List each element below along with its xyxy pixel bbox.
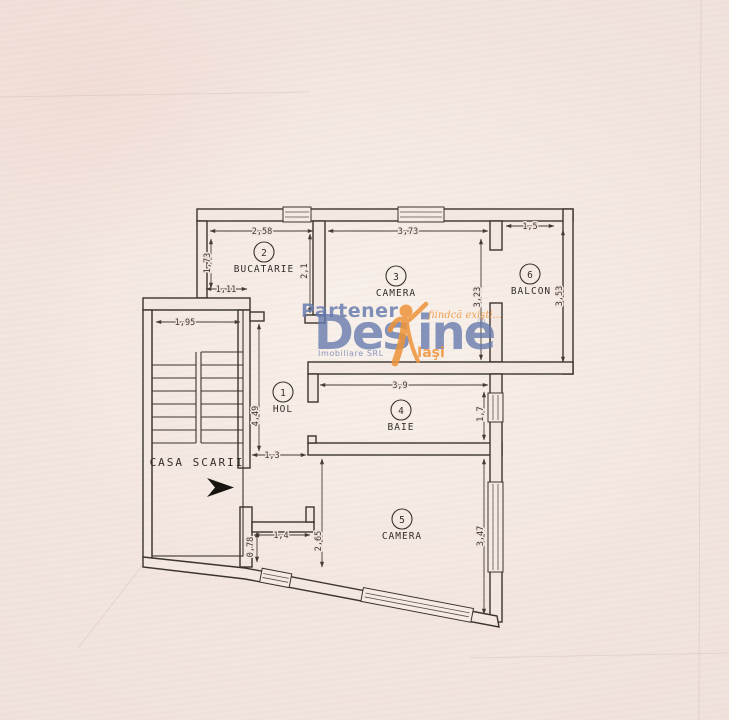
stair-steps <box>152 352 243 443</box>
window-top-room3 <box>398 207 444 222</box>
room-name-camera3: CAMERA <box>376 288 416 299</box>
room-label-hol: 1 HOL <box>273 382 293 415</box>
dim-kitchen-left: 1,73 <box>203 253 213 273</box>
divider-door-jamb <box>305 315 325 323</box>
window-top-kitchen <box>283 207 311 222</box>
dim-room3-right: 3,23 <box>473 287 483 307</box>
room-number-3: 3 <box>393 272 399 283</box>
room-number-5: 5 <box>399 515 405 526</box>
windows <box>260 207 503 622</box>
stairwell-right-wall <box>238 310 250 468</box>
window-right-room5 <box>488 482 503 572</box>
bath-left-jamb <box>308 374 318 402</box>
stair-enclosure <box>152 310 243 556</box>
room-number-1: 1 <box>280 388 286 399</box>
room-name-hol: HOL <box>273 404 293 415</box>
floor-plan-svg: 2,58 1,73 1,11 2,1 3,73 3,23 1,5 3,53 1,… <box>0 0 729 720</box>
dim-kitchen-right: 2,1 <box>300 263 310 278</box>
scanned-floor-plan-paper: 2,58 1,73 1,11 2,1 3,73 3,23 1,5 3,53 1,… <box>0 0 729 720</box>
bath-bottom-jamb <box>308 436 316 443</box>
room-number-2: 2 <box>261 248 267 259</box>
balcony-left-wall-upper <box>490 221 502 250</box>
dim-room5-right: 3,47 <box>476 526 486 546</box>
dim-hall-width: 1,3 <box>264 451 279 461</box>
bath-bottom-wall <box>308 443 502 455</box>
room-name-bucatarie: BUCATARIE <box>234 264 294 275</box>
dim-stairs-width: 1,95 <box>175 318 195 328</box>
diagonal-windows <box>260 568 474 622</box>
stairwell-label: CASA SCARII <box>150 456 245 469</box>
dim-kitchen-top: 2,58 <box>252 227 272 237</box>
window-right-bath <box>488 393 503 422</box>
room-name-baie: BAIE <box>388 422 415 433</box>
entrance-arrow-icon <box>207 478 234 497</box>
room-name-balcon: BALCON <box>511 286 551 297</box>
dim-hall-height: 4,49 <box>251 406 261 426</box>
room-number-4: 4 <box>398 406 404 417</box>
hall-top-stub-wall <box>250 312 264 321</box>
dim-balcony-right: 3,53 <box>555 286 565 306</box>
room-number-6: 6 <box>527 270 533 281</box>
dim-niche-width: 1,4 <box>273 531 288 541</box>
dim-kitchen-door: 1,11 <box>216 285 236 295</box>
paper-creases <box>0 0 729 720</box>
dim-bath-top: 3,9 <box>392 381 407 391</box>
stairwell-top-wall <box>143 298 250 310</box>
kitchen-room3-divider-wall <box>313 221 325 315</box>
dim-balcony-top: 1,5 <box>522 222 537 232</box>
dim-niche-depth: 0,78 <box>246 537 256 557</box>
dim-room5-left: 2,65 <box>314 531 324 551</box>
entry-niche-jamb <box>306 507 314 522</box>
balcony-left-wall-lower <box>490 303 502 362</box>
room-label-camera5: 5 CAMERA <box>382 509 422 542</box>
room-label-balcon: 6 BALCON <box>511 264 551 297</box>
staircase <box>152 310 243 556</box>
room-label-camera3: 3 CAMERA <box>376 266 416 299</box>
top-exterior-wall <box>197 209 573 221</box>
dim-room3-top: 3,73 <box>398 227 418 237</box>
dim-bath-right: 1,7 <box>476 406 486 421</box>
room-label-bucatarie: 2 BUCATARIE <box>234 242 294 275</box>
stairwell-left-wall <box>143 310 152 558</box>
room-label-baie: 4 BAIE <box>388 400 415 433</box>
room3-south-wall <box>308 362 573 374</box>
room-name-camera5: CAMERA <box>382 531 422 542</box>
